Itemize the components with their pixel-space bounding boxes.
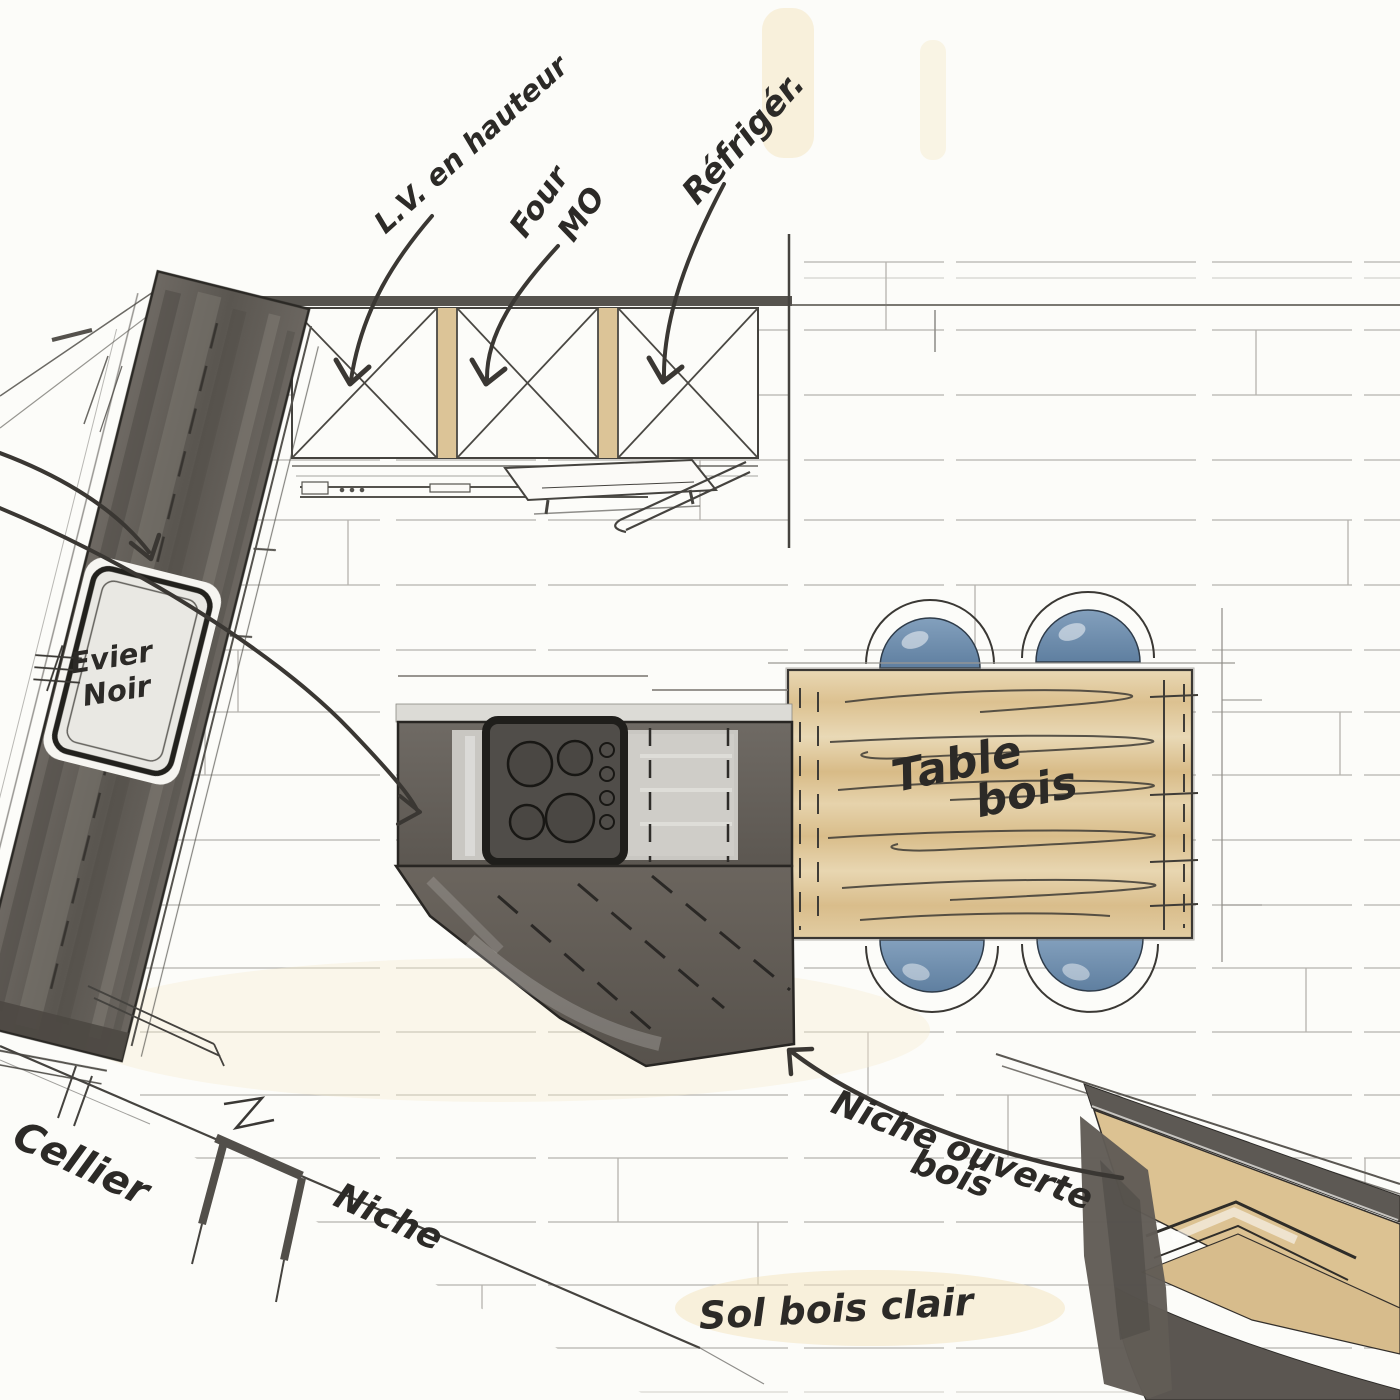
cabinet-divider [437,308,457,458]
wall-cabinets-row [182,234,1400,548]
plan-drawing [0,0,1400,1400]
cooktop [486,720,624,862]
kitchen-plan-sketch: L.V. en hauteur Four MO Réfrigér. Evier … [0,0,1400,1400]
counter-tray [505,460,716,514]
chair [1022,938,1158,1012]
cabinet-divider [598,308,618,458]
chair [1022,592,1154,662]
